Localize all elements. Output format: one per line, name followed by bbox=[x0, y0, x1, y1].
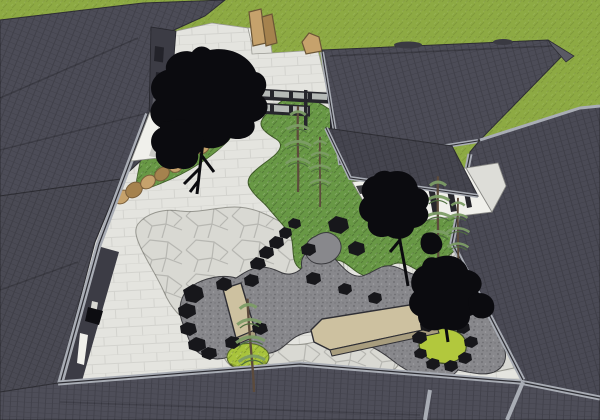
screen-pane bbox=[274, 91, 289, 98]
scene-viewport[interactable] bbox=[0, 0, 600, 420]
render-stage bbox=[0, 0, 600, 420]
ridge-cap bbox=[394, 42, 422, 49]
screen-pane bbox=[274, 105, 289, 112]
screen-pane bbox=[312, 93, 327, 100]
screen-post bbox=[304, 90, 308, 130]
tree-trunk bbox=[446, 328, 448, 342]
wall-window-slit bbox=[154, 46, 164, 63]
ridge-cap bbox=[493, 39, 513, 45]
